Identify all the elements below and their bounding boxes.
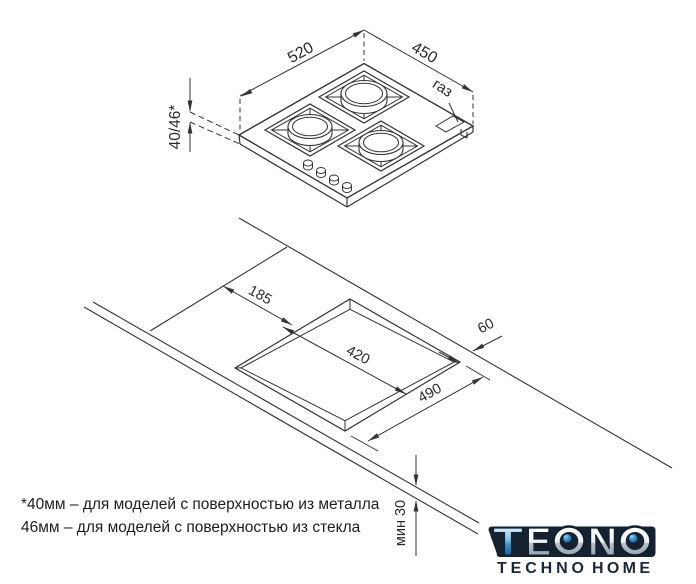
svg-text:T: T [493,521,523,564]
svg-text:*40мм – для моделей с поверхн: *40мм – для моделей с поверхностью из ме… [21,496,380,513]
svg-text:HOME: HOME [592,560,650,577]
svg-text:E: E [526,521,551,564]
svg-text:520: 520 [285,39,317,67]
svg-text:450: 450 [408,39,440,67]
svg-text:мин 30: мин 30 [393,500,409,546]
svg-text:40/46*: 40/46* [167,105,184,150]
svg-text:46мм – для моделей с поверхно: 46мм – для моделей с поверхностью из сте… [21,519,361,536]
svg-text:TECHNO: TECHNO [497,560,584,577]
svg-text:N: N [588,521,617,564]
svg-text:60: 60 [475,316,497,338]
svg-text:185: 185 [245,283,274,309]
